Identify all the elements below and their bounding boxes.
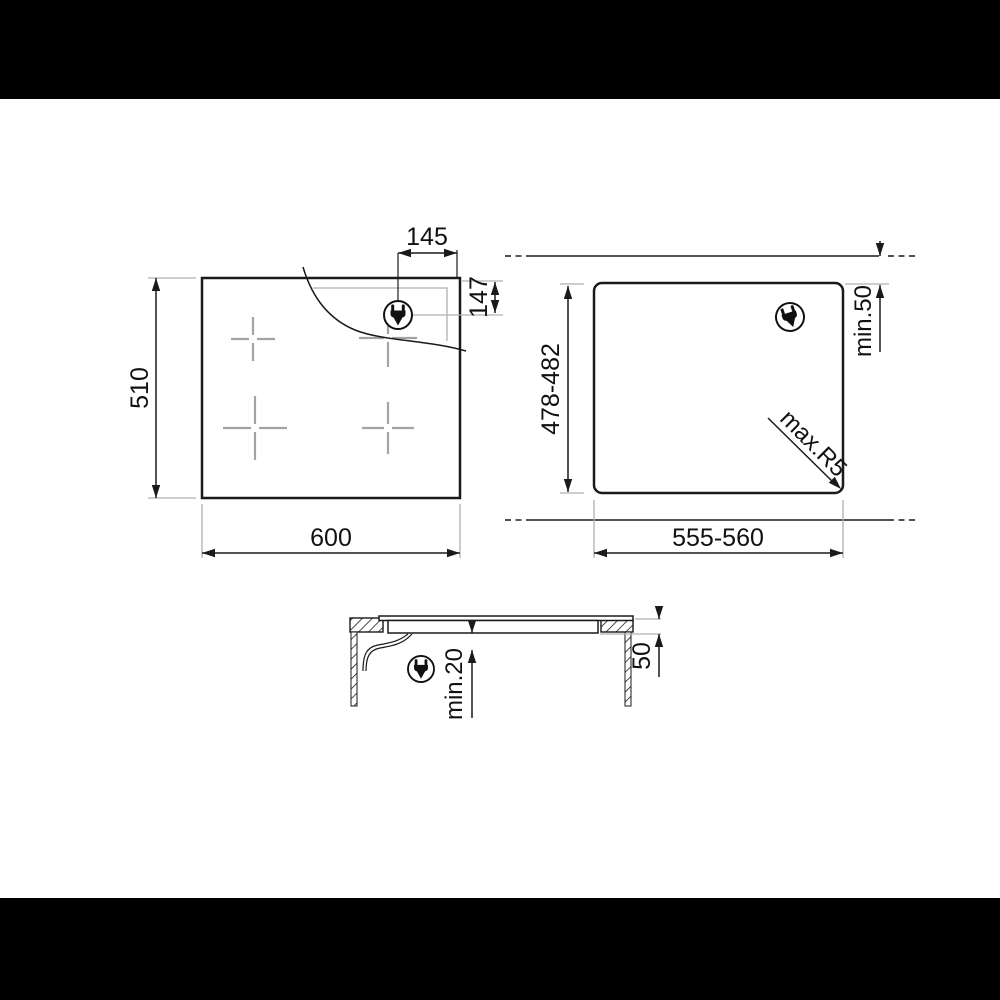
dim-label-50: 50 bbox=[628, 642, 656, 670]
bottom-letterbox-bar bbox=[0, 898, 1000, 1000]
worktop-section-left bbox=[350, 618, 383, 632]
installation-diagram-page: 145 147 510 600 bbox=[0, 0, 1000, 1000]
dim-clearance-below: min.20 bbox=[441, 620, 476, 720]
dim-label-510: 510 bbox=[126, 367, 154, 409]
top-letterbox-bar bbox=[0, 0, 1000, 99]
power-plug-icon bbox=[772, 299, 807, 334]
burner-cross-bottom-left bbox=[223, 396, 287, 460]
dim-hob-width: 600 bbox=[202, 504, 460, 558]
dim-rear-clearance: min.50 bbox=[845, 241, 889, 357]
burner-cross-top-left bbox=[231, 317, 275, 361]
dim-cutout-width: 555-560 bbox=[594, 500, 843, 558]
power-plug-icon bbox=[408, 656, 434, 682]
dim-label-145: 145 bbox=[406, 223, 448, 251]
worktop-cutout-view: min.50 478-482 555-560 max.R5 bbox=[505, 241, 918, 558]
power-plug-icon bbox=[384, 301, 412, 329]
worktop-section-right bbox=[601, 620, 633, 632]
burner-cross-bottom-right bbox=[362, 402, 414, 454]
dim-label-min20: min.20 bbox=[441, 648, 468, 720]
dim-cutout-height: 478-482 bbox=[537, 284, 584, 493]
dim-label-600: 600 bbox=[310, 524, 352, 552]
power-cable bbox=[363, 634, 412, 671]
dim-hob-height: 510 bbox=[126, 278, 196, 498]
dim-plug-offset-y: 147 bbox=[413, 276, 503, 318]
dim-label-maxR5: max.R5 bbox=[775, 405, 853, 483]
dim-label-478-482: 478-482 bbox=[537, 343, 565, 435]
dim-label-555-560: 555-560 bbox=[672, 524, 764, 552]
dim-label-min50: min.50 bbox=[850, 285, 877, 357]
dim-label-147: 147 bbox=[465, 276, 493, 318]
corner-radius-callout: max.R5 bbox=[768, 405, 852, 489]
side-section-view: min.20 50 bbox=[350, 606, 663, 720]
hob-body-profile bbox=[388, 621, 598, 634]
hob-outline bbox=[202, 278, 460, 498]
cutout-outline bbox=[594, 283, 843, 493]
installation-diagram: 145 147 510 600 bbox=[0, 0, 1000, 1000]
hob-top-view: 145 147 510 600 bbox=[126, 223, 503, 558]
cabinet-wall-left bbox=[351, 632, 357, 706]
